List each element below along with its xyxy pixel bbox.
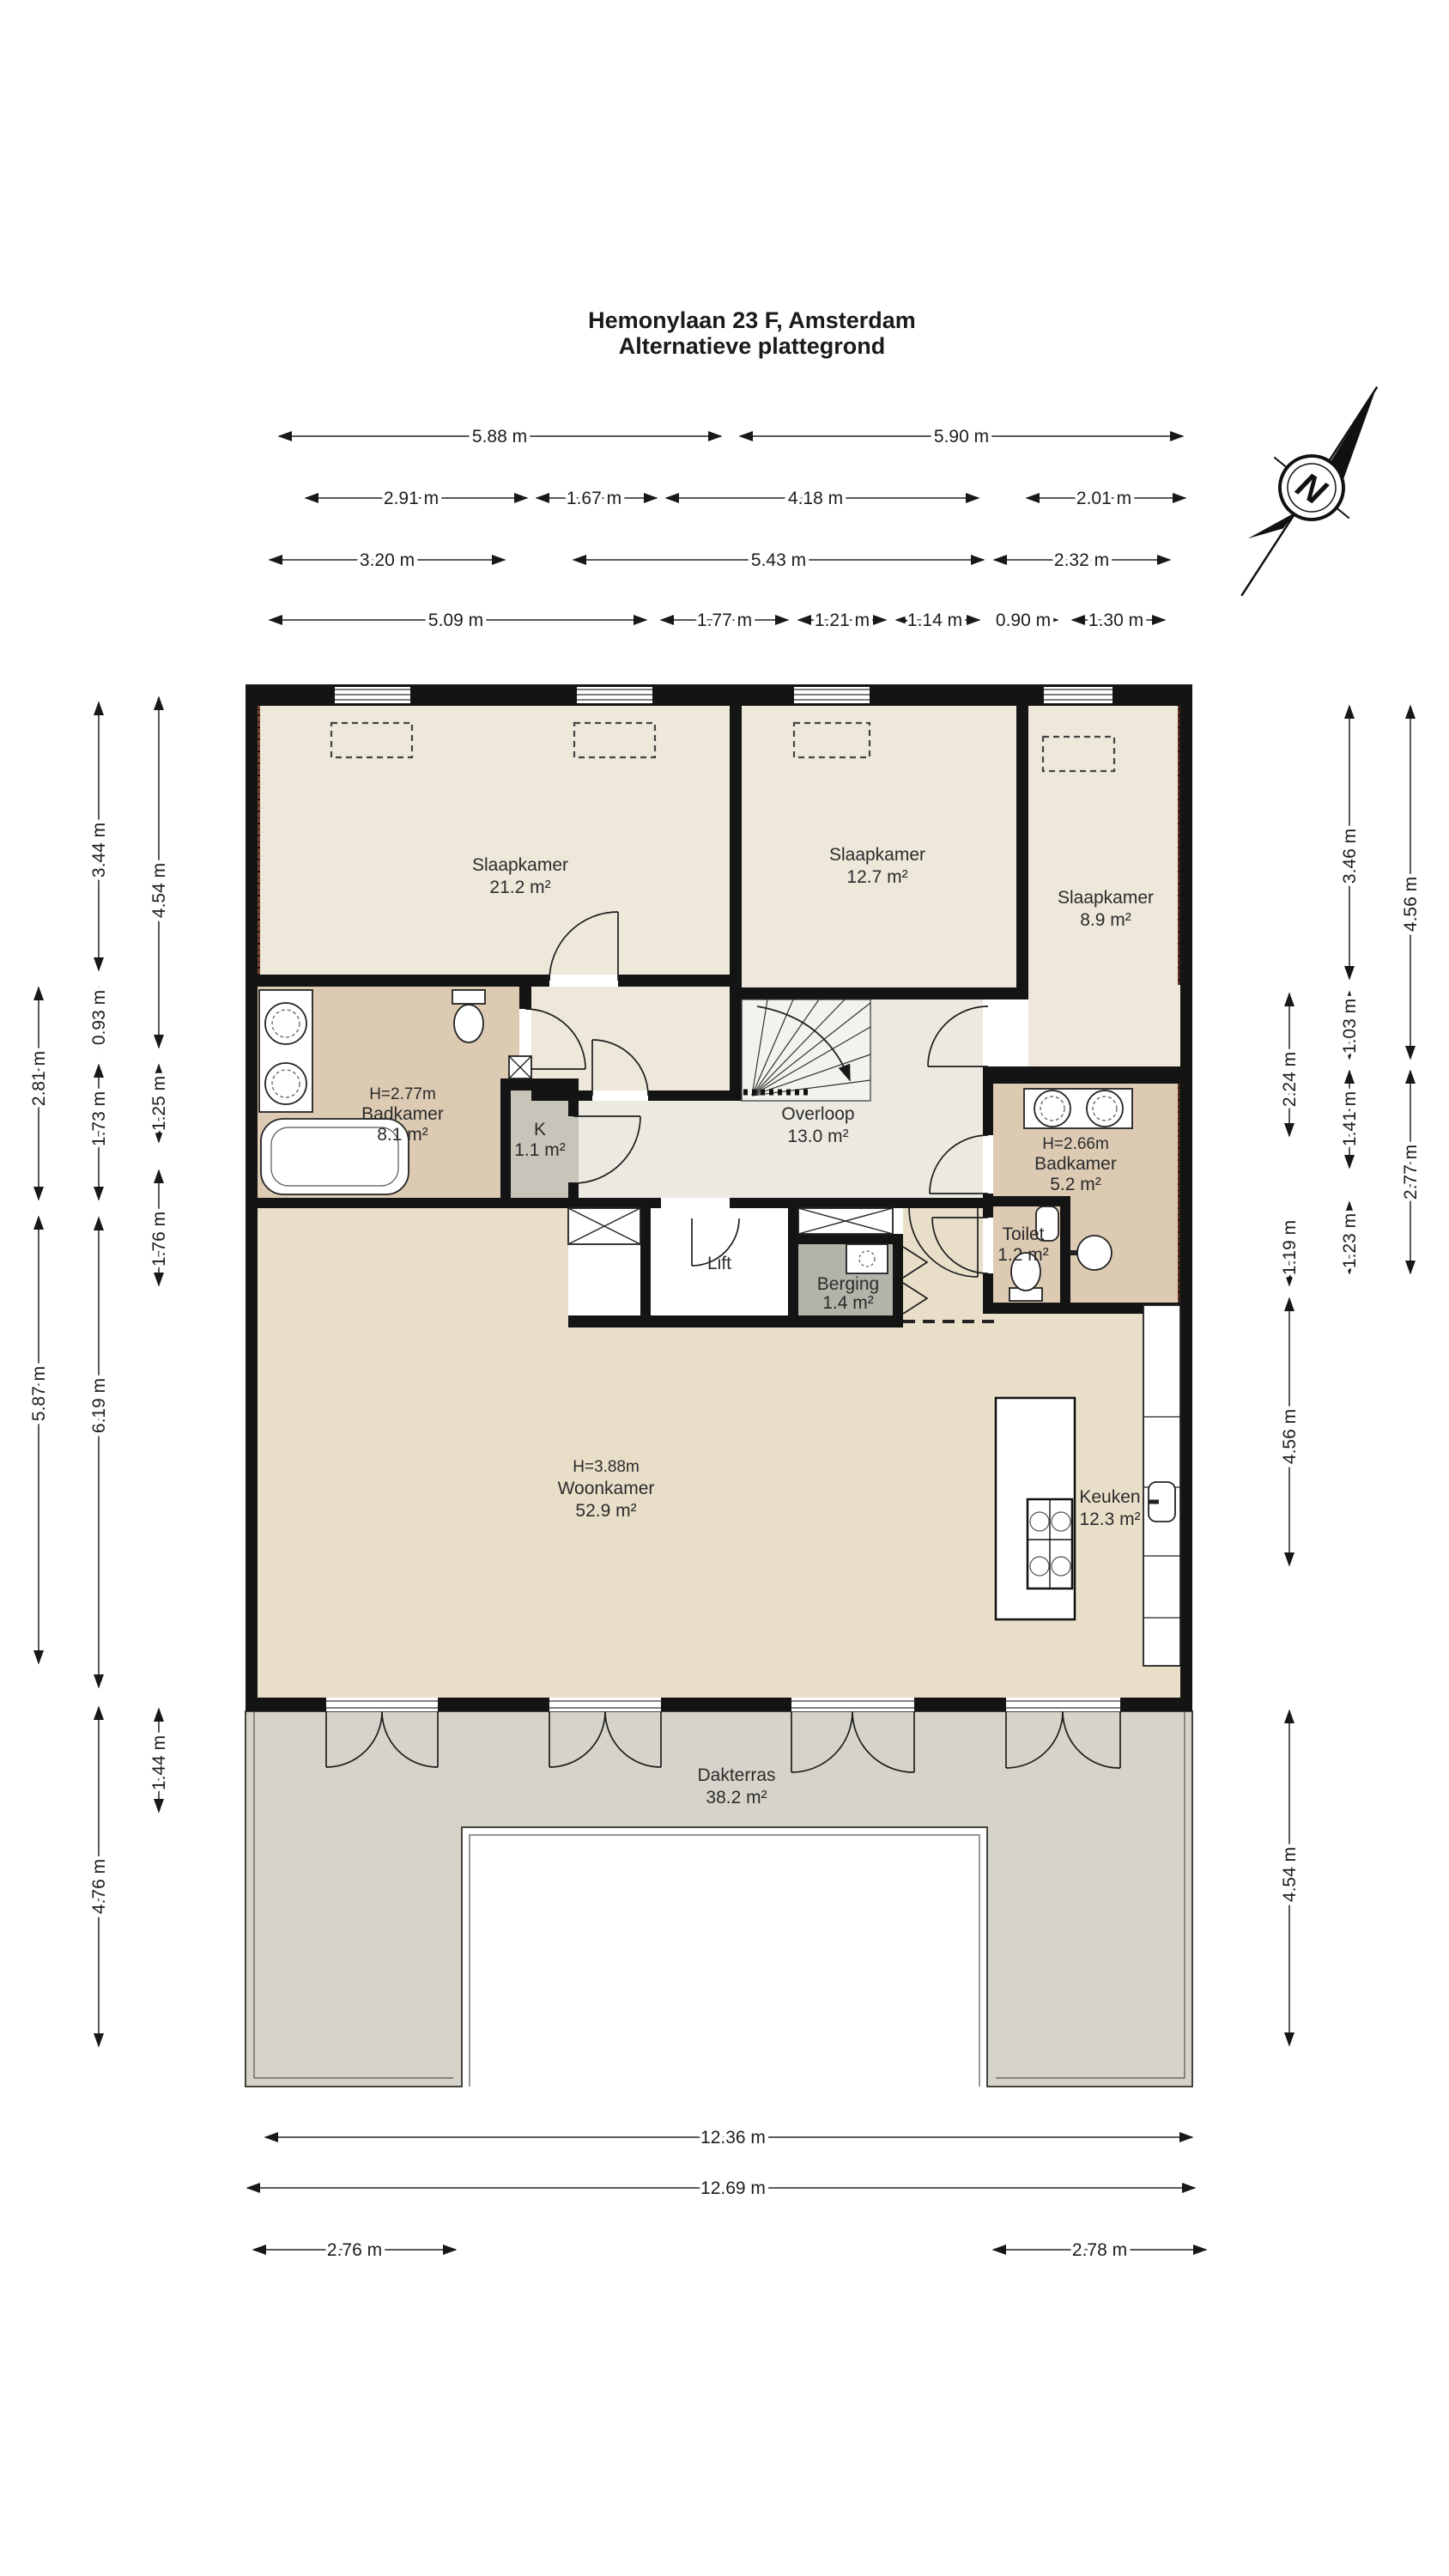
dimension: 6.19 m <box>89 1218 109 1687</box>
svg-text:4.56 m: 4.56 m <box>1401 877 1421 932</box>
room-label: Keuken <box>1079 1487 1140 1507</box>
svg-text:3.46 m: 3.46 m <box>1340 829 1360 884</box>
sink-icon <box>265 1003 306 1044</box>
dimension: 2.01 m <box>1027 489 1185 508</box>
dimension: 5.88 m <box>279 427 721 447</box>
svg-text:4.54 m: 4.54 m <box>1280 1847 1300 1902</box>
room-area: 5.2 m² <box>1050 1175 1101 1194</box>
dimension: 1.76 m <box>149 1170 169 1285</box>
dimension: 4.76 m <box>89 1707 109 2046</box>
room-area: 52.9 m² <box>575 1501 636 1521</box>
dimension: 1.67 m <box>537 489 657 508</box>
room-area: 12.3 m² <box>1079 1510 1140 1529</box>
dimension: 0.93 m <box>89 987 109 1048</box>
dimension: 12.36 m <box>265 2128 1192 2148</box>
room-area: 1.4 m² <box>822 1293 874 1313</box>
dimension: 5.90 m <box>740 427 1183 447</box>
dimension: 4.54 m <box>149 697 169 1048</box>
svg-text:1.30 m: 1.30 m <box>1088 611 1143 630</box>
svg-text:5.09 m: 5.09 m <box>428 611 483 630</box>
dimension: 1.77 m <box>661 611 788 630</box>
room-area: 1.1 m² <box>514 1140 566 1160</box>
room-area: 8.1 m² <box>377 1125 428 1145</box>
room-label: Overloop <box>781 1104 854 1124</box>
svg-text:6.19 m: 6.19 m <box>89 1378 109 1433</box>
svg-text:1.73 m: 1.73 m <box>89 1091 109 1146</box>
room-label: Slaapkamer <box>1058 888 1154 908</box>
dimensions-top: 5.88 m 5.90 m 2.91 m 1.67 m 4.18 m 2.01 … <box>270 427 1185 630</box>
dimension: 12.69 m <box>247 2178 1195 2198</box>
room-label: Lift <box>707 1254 731 1273</box>
room-label: Dakterras <box>697 1765 775 1785</box>
room-label: Toilet <box>1002 1224 1044 1244</box>
svg-text:1.67 m: 1.67 m <box>567 489 621 508</box>
room-ceiling: H=2.66m <box>1042 1135 1109 1153</box>
page-subtitle: Alternatieve plattegrond <box>619 333 886 359</box>
room-label: Slaapkamer <box>472 855 568 875</box>
svg-text:2.32 m: 2.32 m <box>1054 550 1109 570</box>
window-icon <box>335 687 410 703</box>
dimension: 1.25 m <box>149 1065 169 1142</box>
svg-text:1.03 m: 1.03 m <box>1340 999 1360 1054</box>
svg-text:5.90 m: 5.90 m <box>934 427 989 447</box>
svg-text:1.19 m: 1.19 m <box>1280 1220 1300 1275</box>
room-area: 1.2 m² <box>997 1245 1049 1265</box>
window-icon <box>794 687 870 703</box>
toilet-tank <box>452 990 485 1004</box>
dimension: 1.21 m <box>798 611 886 630</box>
svg-text:4.76 m: 4.76 m <box>89 1859 109 1914</box>
room-label: Berging <box>817 1274 879 1294</box>
svg-text:12.36 m: 12.36 m <box>700 2128 766 2148</box>
svg-text:1.76 m: 1.76 m <box>149 1212 169 1267</box>
window-icon <box>577 687 652 703</box>
room-label: Badkamer <box>1034 1154 1117 1174</box>
dimension: 1.73 m <box>89 1065 109 1200</box>
svg-text:2.91 m: 2.91 m <box>384 489 439 508</box>
dimensions-bottom: 12.36 m 12.69 m 2.76 m 2.78 m <box>247 2128 1206 2260</box>
toilet-icon <box>454 1005 483 1042</box>
page-title: Hemonylaan 23 F, Amsterdam <box>588 307 916 333</box>
dimensions-right: 2.24 m 1.19 m 4.56 m 4.54 m 3.46 m 1.03 … <box>1280 706 1421 2045</box>
dimension: 4.54 m <box>1280 1710 1300 2045</box>
svg-text:2.76 m: 2.76 m <box>327 2240 382 2260</box>
svg-text:1.41 m: 1.41 m <box>1340 1091 1360 1146</box>
dimension: 5.09 m <box>270 611 646 630</box>
dimension: 0.90 m <box>994 611 1058 630</box>
dimension: 1.14 m <box>896 611 979 630</box>
sink-icon <box>1087 1091 1123 1127</box>
dimension: 5.87 m <box>29 1217 49 1663</box>
floorplan-drawing: Hemonylaan 23 F, Amsterdam Alternatieve … <box>0 0 1449 2576</box>
dimension: 4.56 m <box>1401 706 1421 1059</box>
svg-text:3.20 m: 3.20 m <box>360 550 415 570</box>
dimension: 1.30 m <box>1072 611 1165 630</box>
dimension: 5.43 m <box>573 550 984 570</box>
svg-text:1.25 m: 1.25 m <box>149 1076 169 1131</box>
room-area: 8.9 m² <box>1080 910 1131 930</box>
dimension: 2.24 m <box>1280 993 1300 1136</box>
svg-text:2.78 m: 2.78 m <box>1072 2240 1127 2260</box>
svg-text:1.77 m: 1.77 m <box>697 611 752 630</box>
pedestal-sink-icon <box>1077 1236 1112 1270</box>
dimension: 2.78 m <box>993 2240 1206 2260</box>
svg-text:0.93 m: 0.93 m <box>89 990 109 1045</box>
svg-text:1.44 m: 1.44 m <box>149 1735 169 1790</box>
floorplan-page: Hemonylaan 23 F, Amsterdam Alternatieve … <box>0 0 1449 2576</box>
svg-text:1.21 m: 1.21 m <box>815 611 870 630</box>
room-area: 21.2 m² <box>489 878 550 897</box>
dimension: 3.20 m <box>270 550 505 570</box>
dimension: 4.56 m <box>1280 1298 1300 1565</box>
svg-text:5.87 m: 5.87 m <box>29 1366 49 1421</box>
room-area: 13.0 m² <box>787 1127 848 1146</box>
sink-icon <box>1034 1091 1070 1127</box>
dimension: 1.44 m <box>149 1709 169 1812</box>
dimension: 1.03 m <box>1340 992 1360 1059</box>
svg-text:4.18 m: 4.18 m <box>788 489 843 508</box>
dimension: 4.18 m <box>666 489 979 508</box>
svg-text:2.01 m: 2.01 m <box>1076 489 1131 508</box>
svg-text:12.69 m: 12.69 m <box>700 2178 766 2198</box>
dimension: 3.46 m <box>1340 706 1360 979</box>
svg-text:5.43 m: 5.43 m <box>751 550 806 570</box>
dimension: 2.81 m <box>29 987 49 1200</box>
dimension: 2.32 m <box>994 550 1170 570</box>
room-label: Badkamer <box>361 1104 444 1124</box>
dimension: 1.19 m <box>1280 1219 1300 1285</box>
shower-tray-icon <box>846 1244 888 1273</box>
svg-text:0.90 m: 0.90 m <box>996 611 1051 630</box>
svg-text:4.54 m: 4.54 m <box>149 863 169 918</box>
dimension: 2.76 m <box>253 2240 456 2260</box>
window-icon <box>1044 687 1113 703</box>
svg-text:4.56 m: 4.56 m <box>1280 1409 1300 1464</box>
compass-north-icon: N <box>1201 361 1417 622</box>
dimension: 2.77 m <box>1401 1071 1421 1273</box>
svg-text:2.77 m: 2.77 m <box>1401 1145 1421 1200</box>
svg-text:2.81 m: 2.81 m <box>29 1051 49 1106</box>
room-label: Woonkamer <box>558 1479 655 1498</box>
svg-text:5.88 m: 5.88 m <box>472 427 527 447</box>
sink-icon <box>265 1063 306 1104</box>
svg-text:3.44 m: 3.44 m <box>89 823 109 878</box>
room-area: 38.2 m² <box>706 1788 767 1807</box>
dimensions-left: 2.81 m 5.87 m 3.44 m 0.93 m 1.73 m 6.19 … <box>29 697 169 2046</box>
dimension: 2.91 m <box>306 489 527 508</box>
staircase-icon <box>742 999 870 1101</box>
svg-text:2.24 m: 2.24 m <box>1280 1052 1300 1107</box>
dimension: 1.41 m <box>1340 1071 1360 1168</box>
svg-text:1.23 m: 1.23 m <box>1340 1213 1360 1268</box>
dimension: 1.23 m <box>1340 1202 1360 1273</box>
room-ceiling: H=2.77m <box>369 1085 436 1103</box>
room-ceiling: H=3.88m <box>573 1458 640 1476</box>
dimension: 3.44 m <box>89 702 109 970</box>
room-label: Slaapkamer <box>829 845 925 865</box>
room-area: 12.7 m² <box>846 867 907 887</box>
room-label: K <box>534 1120 546 1139</box>
svg-text:1.14 m: 1.14 m <box>907 611 962 630</box>
